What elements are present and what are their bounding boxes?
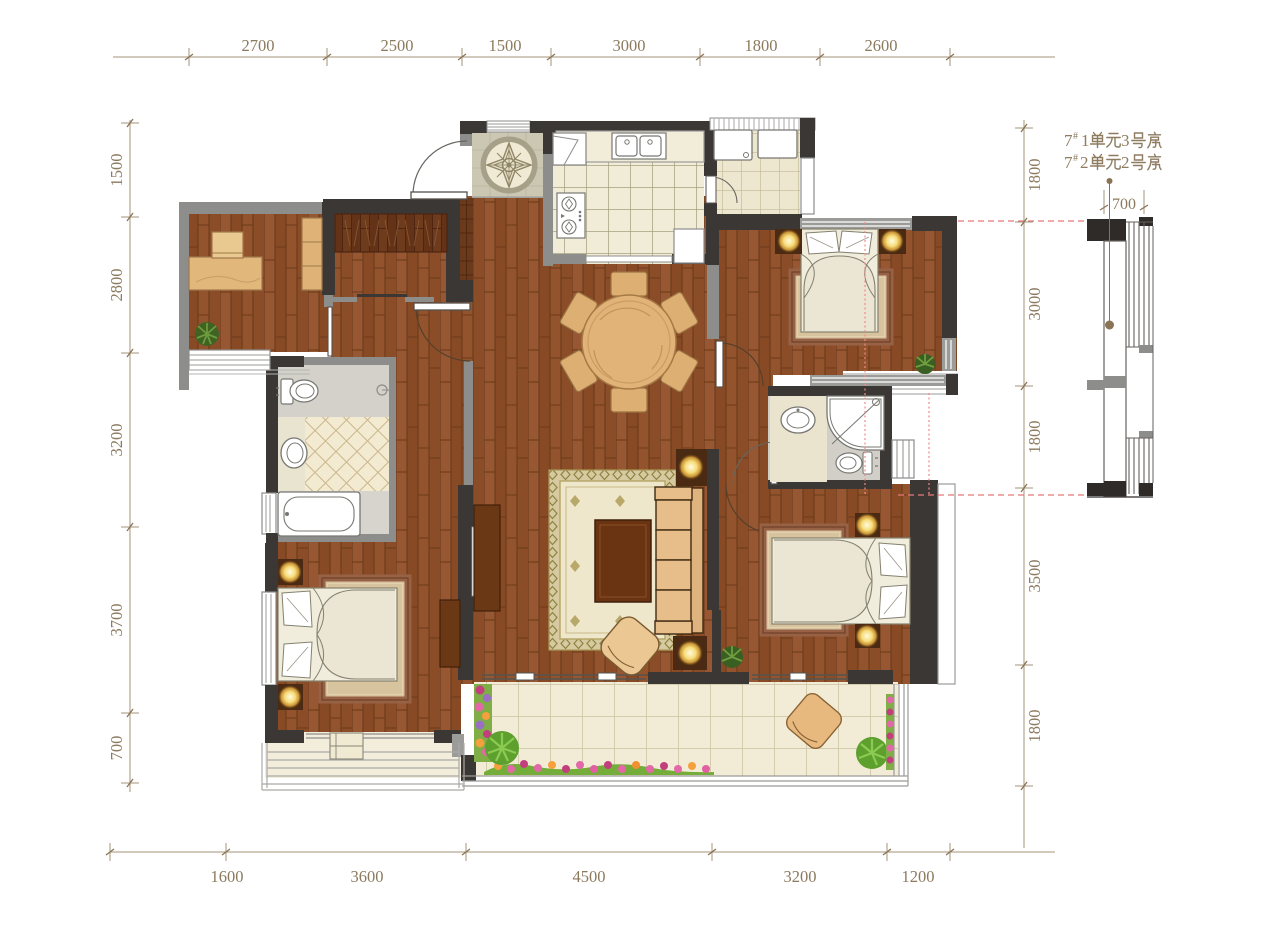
svg-text:4500: 4500 xyxy=(573,867,606,886)
svg-text:1800: 1800 xyxy=(1025,421,1044,454)
svg-text:1500: 1500 xyxy=(107,154,126,187)
svg-text:3500: 3500 xyxy=(1025,560,1044,593)
svg-text:3200: 3200 xyxy=(107,424,126,457)
svg-text:7: 7 xyxy=(1064,131,1073,150)
svg-text:2700: 2700 xyxy=(242,36,275,55)
svg-text:2: 2 xyxy=(1121,153,1130,172)
svg-text:#: # xyxy=(1073,131,1078,142)
svg-text:7: 7 xyxy=(1064,153,1073,172)
svg-text:3200: 3200 xyxy=(784,867,817,886)
svg-text:3000: 3000 xyxy=(613,36,646,55)
svg-text:1800: 1800 xyxy=(1025,710,1044,743)
svg-text:3000: 3000 xyxy=(1025,288,1044,321)
svg-text:2800: 2800 xyxy=(107,269,126,302)
svg-text:3600: 3600 xyxy=(351,867,384,886)
svg-text:2: 2 xyxy=(1080,153,1089,172)
svg-text:3: 3 xyxy=(1121,131,1130,150)
svg-text:3700: 3700 xyxy=(107,604,126,637)
svg-text:2600: 2600 xyxy=(865,36,898,55)
svg-text:1600: 1600 xyxy=(211,867,244,886)
svg-text:2500: 2500 xyxy=(381,36,414,55)
svg-text:700: 700 xyxy=(1112,196,1136,213)
svg-text:1200: 1200 xyxy=(902,867,935,886)
svg-text:#: # xyxy=(1073,153,1078,164)
svg-text:1: 1 xyxy=(1081,131,1090,150)
svg-text:1800: 1800 xyxy=(745,36,778,55)
svg-text:1800: 1800 xyxy=(1025,159,1044,192)
svg-text:700: 700 xyxy=(107,736,126,761)
svg-text:1500: 1500 xyxy=(489,36,522,55)
